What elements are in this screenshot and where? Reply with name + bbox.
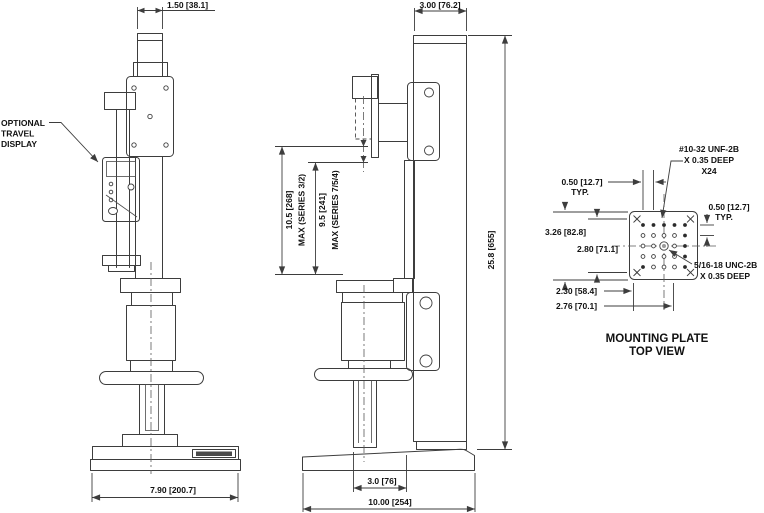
mount-plate-hole xyxy=(420,297,432,309)
side-table-disc xyxy=(315,369,413,381)
display-button xyxy=(109,190,113,194)
dim-front-base-width-label: 7.90 [200.7] xyxy=(150,485,196,495)
front-view: 1.50 [38.1] 7.90 [200.7] OPTIONAL TRAVEL… xyxy=(1,0,241,502)
callout-travel-display-line1: OPTIONAL xyxy=(1,118,45,128)
measure-tick xyxy=(361,140,367,147)
front-neck xyxy=(132,293,173,306)
callout-center-hole: 5/16-18 UNC-2B X 0.35 DEEP xyxy=(669,250,757,281)
engineering-drawing-test-stand: 1.50 [38.1] 7.90 [200.7] OPTIONAL TRAVEL… xyxy=(0,0,764,513)
dim-travel-max: 10.5 [268] MAX (SERIES 3/2) 9.5 [241] MA… xyxy=(275,147,368,275)
screw-hole xyxy=(164,86,168,90)
dim-side-base-depth-label: 10.00 [254] xyxy=(368,497,412,507)
dim-front-top-width-label: 1.50 [38.1] xyxy=(167,0,208,10)
ruler-foot xyxy=(103,256,141,266)
callout-travel-display: OPTIONAL TRAVEL DISPLAY xyxy=(1,118,98,162)
dim-travel-a-note: MAX (SERIES 3/2) xyxy=(297,174,307,246)
callout-travel-display-line2: TRAVEL xyxy=(1,129,34,139)
callout-small-holes-line2: X 0.35 DEEP xyxy=(684,155,734,165)
ruler-foot-pad xyxy=(109,266,135,272)
mounting-plate-caption-line1: MOUNTING PLATE xyxy=(606,333,709,345)
front-base-lower xyxy=(91,460,241,471)
display-button xyxy=(109,182,113,186)
dim-pitch-right-note: TYP. xyxy=(715,212,733,222)
dim-bottom-b-label: 2.76 [70.1] xyxy=(556,301,597,311)
dim-travel-b-note: MAX (SERIES 7/5/4) xyxy=(330,170,340,250)
display-thumbwheel xyxy=(109,208,118,215)
display-dial xyxy=(128,184,134,190)
dim-side-column-width-label: 3.00 [76.2] xyxy=(419,0,460,10)
dim-throat: 3.0 [76] xyxy=(354,452,407,492)
measure-tick xyxy=(361,156,367,163)
drawing-svg: 1.50 [38.1] 7.90 [200.7] OPTIONAL TRAVEL… xyxy=(0,0,764,513)
dim-front-top-width: 1.50 [38.1] xyxy=(138,0,216,29)
screw-hole xyxy=(132,143,136,147)
carriage-hole xyxy=(425,146,434,155)
front-shaft xyxy=(140,385,165,435)
front-crossbar xyxy=(121,279,181,293)
side-crossbar xyxy=(337,281,394,293)
dim-pitch-top: 0.50 [12.7] TYP. xyxy=(561,170,666,210)
side-column-foot xyxy=(417,442,467,450)
side-crossbar-block xyxy=(394,279,413,293)
callout-center-hole-line2: X 0.35 DEEP xyxy=(700,271,750,281)
side-carriage-plate xyxy=(408,83,440,161)
dim-plate-bottom: 2.30 [58.4] 2.76 [70.1] xyxy=(556,283,674,311)
side-base xyxy=(303,449,475,470)
side-view: 3.00 [76.2] 25.8 [655] 10.5 [268] MAX (S… xyxy=(275,0,512,512)
center-hole-bore xyxy=(662,244,666,248)
callout-center-hole-line1: 5/16-18 UNC-2B xyxy=(694,260,757,270)
dim-bottom-a-label: 2.30 [58.4] xyxy=(556,286,597,296)
dim-travel-a-label: 10.5 [268] xyxy=(284,190,294,229)
dim-plate-size-label: 3.26 [82.8] xyxy=(545,227,586,237)
dim-travel-b-label: 9.5 [241] xyxy=(317,193,327,227)
dim-pitch-top-note: TYP. xyxy=(571,187,589,197)
dim-plate-left: 3.26 [82.8] 2.80 [71.1] xyxy=(545,203,628,289)
front-shaft-block xyxy=(123,435,178,447)
screw-hole xyxy=(132,86,136,90)
side-shaft xyxy=(354,381,377,448)
side-neck xyxy=(343,293,403,303)
side-head-block xyxy=(353,77,378,99)
side-neck-lower xyxy=(349,361,391,369)
mount-plate-hole xyxy=(420,355,432,367)
front-neck-lower xyxy=(131,361,173,372)
ruler-bracket xyxy=(105,93,136,110)
dim-hole-span-label: 2.80 [71.1] xyxy=(577,244,618,254)
travel-display-screen xyxy=(107,162,136,177)
front-shaft-inner xyxy=(146,385,159,431)
screw-hole xyxy=(148,114,152,118)
dim-pitch-right-label: 0.50 [12.7] xyxy=(708,202,749,212)
mounting-plate-view: 0.50 [12.7] TYP. 0.50 [12.7] TYP. 3.26 [… xyxy=(545,144,757,358)
dim-overall-height: 25.8 [655] xyxy=(468,36,512,450)
side-cylinder xyxy=(342,303,405,361)
base-label-bar xyxy=(196,452,232,457)
callout-travel-display-line3: DISPLAY xyxy=(1,139,37,149)
dim-throat-label: 3.0 [76] xyxy=(367,476,396,486)
callout-small-holes-line3: X24 xyxy=(701,166,716,176)
dim-front-base-width: 7.90 [200.7] xyxy=(92,473,238,502)
mounting-plate-caption-line2: TOP VIEW xyxy=(629,346,685,358)
dim-pitch-right: 0.50 [12.7] TYP. xyxy=(700,202,750,247)
front-table-disc xyxy=(100,372,204,385)
carriage-hole xyxy=(425,88,434,97)
callout-small-holes-line1: #10-32 UNF-2B xyxy=(679,144,739,154)
travel-display xyxy=(103,158,140,222)
dim-overall-height-label: 25.8 [655] xyxy=(486,230,496,269)
dim-pitch-top-label: 0.50 [12.7] xyxy=(561,177,602,187)
dim-side-column-width: 3.00 [76.2] xyxy=(415,0,467,31)
front-top-rod xyxy=(138,34,163,77)
screw-hole xyxy=(164,143,168,147)
